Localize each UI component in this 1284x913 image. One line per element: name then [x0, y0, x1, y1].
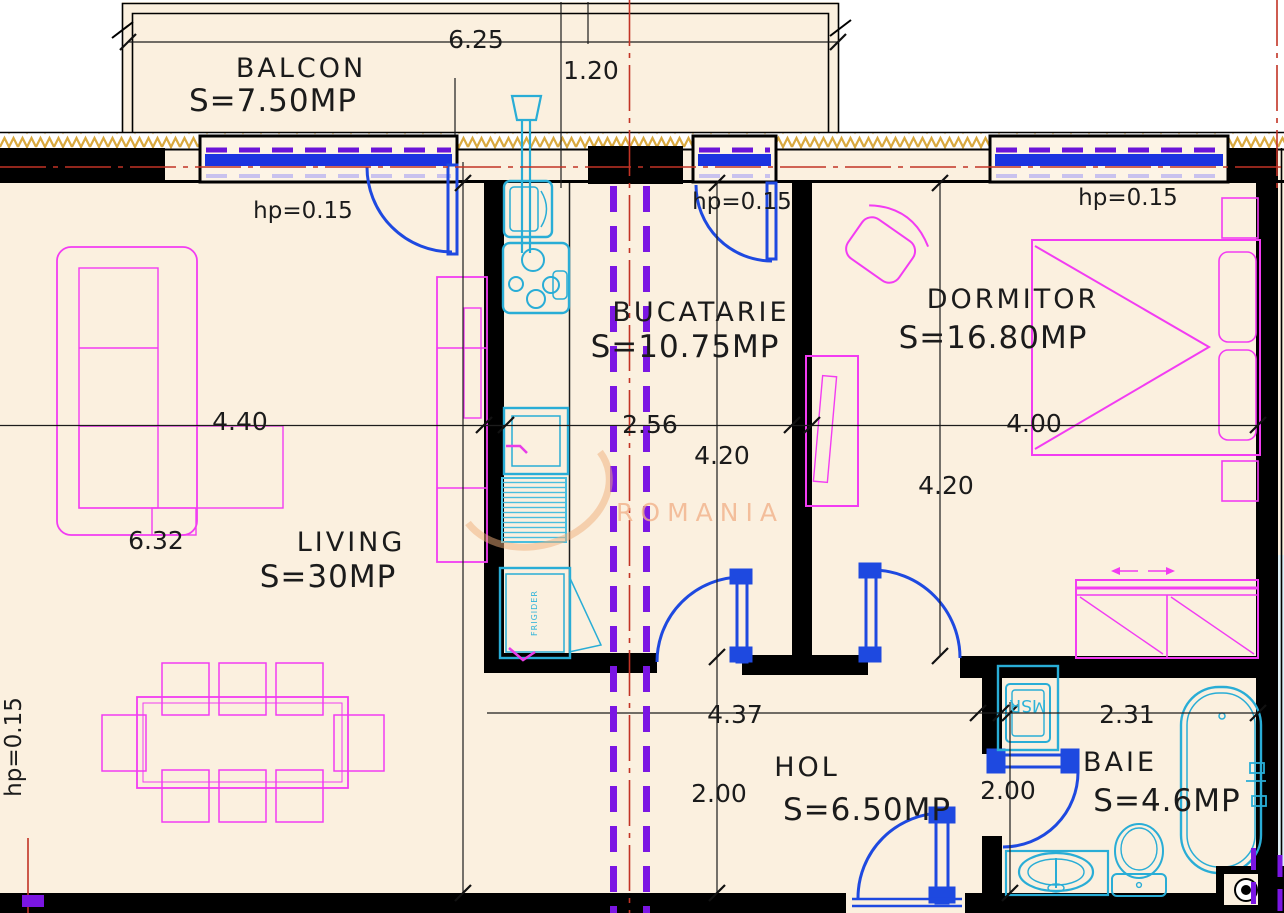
dim-hall-height: 2.00: [691, 779, 747, 808]
dim-bathroom-height: 2.00: [980, 776, 1036, 805]
area-balcony: S=7.50MP: [189, 83, 357, 119]
dim-living-height: 6.32: [128, 526, 184, 555]
window-kitchen: [693, 136, 776, 182]
label-washing-machine: MSR: [1009, 695, 1046, 715]
dim-kitchen-width: 2.56: [622, 410, 678, 439]
label-bedroom: DORMITOR: [927, 284, 1100, 315]
label-fridge: FRIGIDER: [530, 590, 539, 636]
dishwasher: [502, 478, 566, 542]
label-hall: HOL: [774, 752, 840, 783]
dim-balcony-width: 6.25: [448, 25, 504, 54]
dim-bathroom-width: 2.31: [1099, 700, 1155, 729]
label-kitchen: BUCATARIE: [612, 297, 789, 328]
window-bedroom: [990, 136, 1228, 182]
wall-column-center: [588, 146, 683, 184]
wall-top-left: [0, 148, 165, 182]
dim-bedroom-width: 4.00: [1006, 409, 1062, 438]
wall-bathroom-left-lower: [982, 836, 1002, 895]
area-bathroom: S=4.6MP: [1093, 783, 1240, 819]
parapet-living-left: hp=0.15: [1, 697, 27, 797]
dim-bedroom-height: 4.20: [918, 471, 974, 500]
wall-hall-top: [742, 655, 868, 675]
wall-bottom-left: [0, 893, 846, 913]
floor-plan-drawing: ROMANIA 6.25 BALCON S=7.50MP 1.20 hp=0.1…: [0, 0, 1284, 913]
floor-plan-canvas: ROMANIA 6.25 BALCON S=7.50MP 1.20 hp=0.1…: [0, 0, 1284, 913]
label-bathroom: BAIE: [1083, 747, 1157, 778]
label-balcony: BALCON: [236, 53, 366, 84]
label-living: LIVING: [297, 527, 406, 558]
dim-living-width: 4.40: [212, 407, 268, 436]
parapet-kitchen: hp=0.15: [692, 189, 792, 215]
area-hall: S=6.50MP: [783, 792, 951, 828]
area-kitchen: S=10.75MP: [591, 329, 780, 365]
watermark-text: ROMANIA: [616, 498, 784, 527]
dim-kitchen-height: 4.20: [694, 441, 750, 470]
dim-balcony-depth: 1.20: [563, 56, 619, 85]
windows: [200, 136, 1228, 182]
area-living: S=30MP: [260, 559, 397, 595]
wall-kitchen-bedroom: [792, 181, 812, 655]
dim-hall-width: 4.37: [707, 700, 763, 729]
parapet-living: hp=0.15: [253, 198, 353, 224]
window-living: [200, 136, 457, 182]
parapet-bedroom: hp=0.15: [1078, 185, 1178, 211]
area-bedroom: S=16.80MP: [899, 320, 1088, 356]
shaft: [1216, 866, 1284, 913]
